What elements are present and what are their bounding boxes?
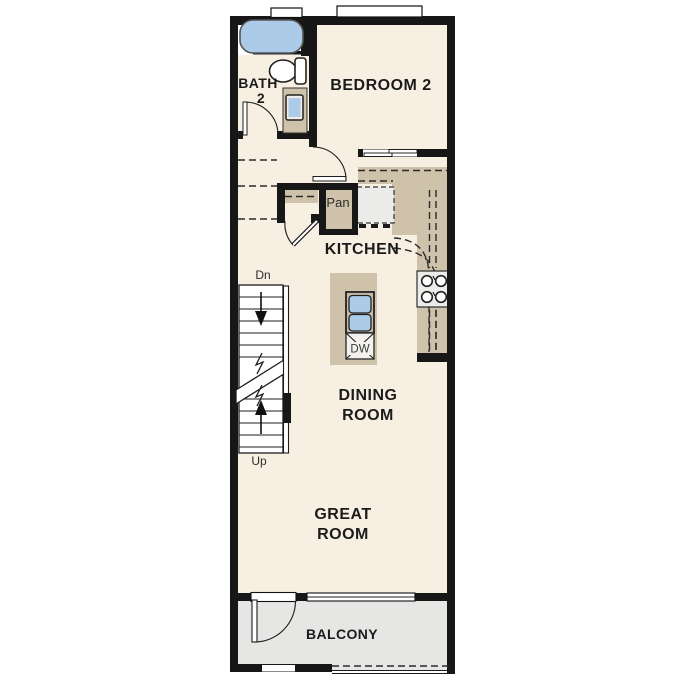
burner-icon — [422, 276, 433, 287]
bypass-closet-doors — [363, 150, 417, 157]
bathtub — [240, 20, 303, 53]
stair-railing — [284, 286, 289, 453]
dining-room-label-line2: ROOM — [342, 407, 394, 424]
stair-down-label: Dn — [255, 268, 270, 282]
pantry-label: Pan — [326, 195, 349, 210]
wall-bath-south-left — [230, 131, 243, 139]
great-room-label-line1: GREAT — [314, 506, 371, 523]
bath-door-leaf — [243, 102, 247, 135]
vanity — [283, 88, 307, 133]
kitchen-island: DW — [330, 273, 377, 365]
dishwasher-label: DW — [350, 344, 369, 356]
balcony-door-leaf — [252, 600, 257, 642]
floor-plan: DW — [0, 0, 687, 687]
refrigerator-body — [357, 187, 394, 223]
wall-bedroom-west — [309, 16, 317, 147]
wall-pantry-east — [352, 189, 358, 235]
window-bedroom2 — [337, 6, 422, 17]
bypass-door-panel — [389, 150, 417, 154]
dishwasher: DW — [346, 333, 374, 359]
bath-label-line2: 2 — [257, 90, 265, 106]
bedroom2-door-leaf — [313, 177, 346, 182]
staircase — [236, 285, 291, 453]
wall-kitchen-north — [277, 183, 358, 190]
bedroom2-label: BEDROOM 2 — [330, 77, 431, 94]
sink-basin — [349, 296, 371, 314]
refrigerator — [357, 187, 395, 226]
counter-corner — [392, 184, 452, 235]
bypass-door-panel — [364, 153, 392, 157]
wall-counter-end-cap — [417, 353, 452, 362]
wall-west — [230, 16, 238, 672]
bathtub-basin — [240, 20, 303, 53]
great-room-label-line2: ROOM — [317, 526, 369, 543]
stair-up-label: Up — [251, 454, 267, 468]
wall-pantry-south — [319, 229, 358, 235]
burner-icon — [436, 292, 447, 303]
burner-icon — [422, 292, 433, 303]
sink-basin — [349, 315, 371, 332]
burner-icon — [436, 276, 447, 287]
stove — [417, 271, 450, 307]
balcony-label: BALCONY — [306, 626, 378, 642]
closet-door-jamb-left — [277, 214, 285, 223]
bath-label-line1: BATH — [238, 75, 277, 91]
window-bath — [271, 8, 302, 18]
kitchen-label: KITCHEN — [325, 241, 400, 258]
balcony-wall-opening — [262, 665, 295, 672]
wall-east — [447, 16, 455, 674]
balcony-door-header — [251, 593, 296, 602]
vanity-sink-basin — [289, 98, 301, 117]
dining-room-label-line1: DINING — [339, 387, 398, 404]
toilet-tank — [295, 58, 306, 84]
stair-railing-wall-stub — [283, 393, 291, 423]
wall-pantry-west — [319, 189, 326, 235]
